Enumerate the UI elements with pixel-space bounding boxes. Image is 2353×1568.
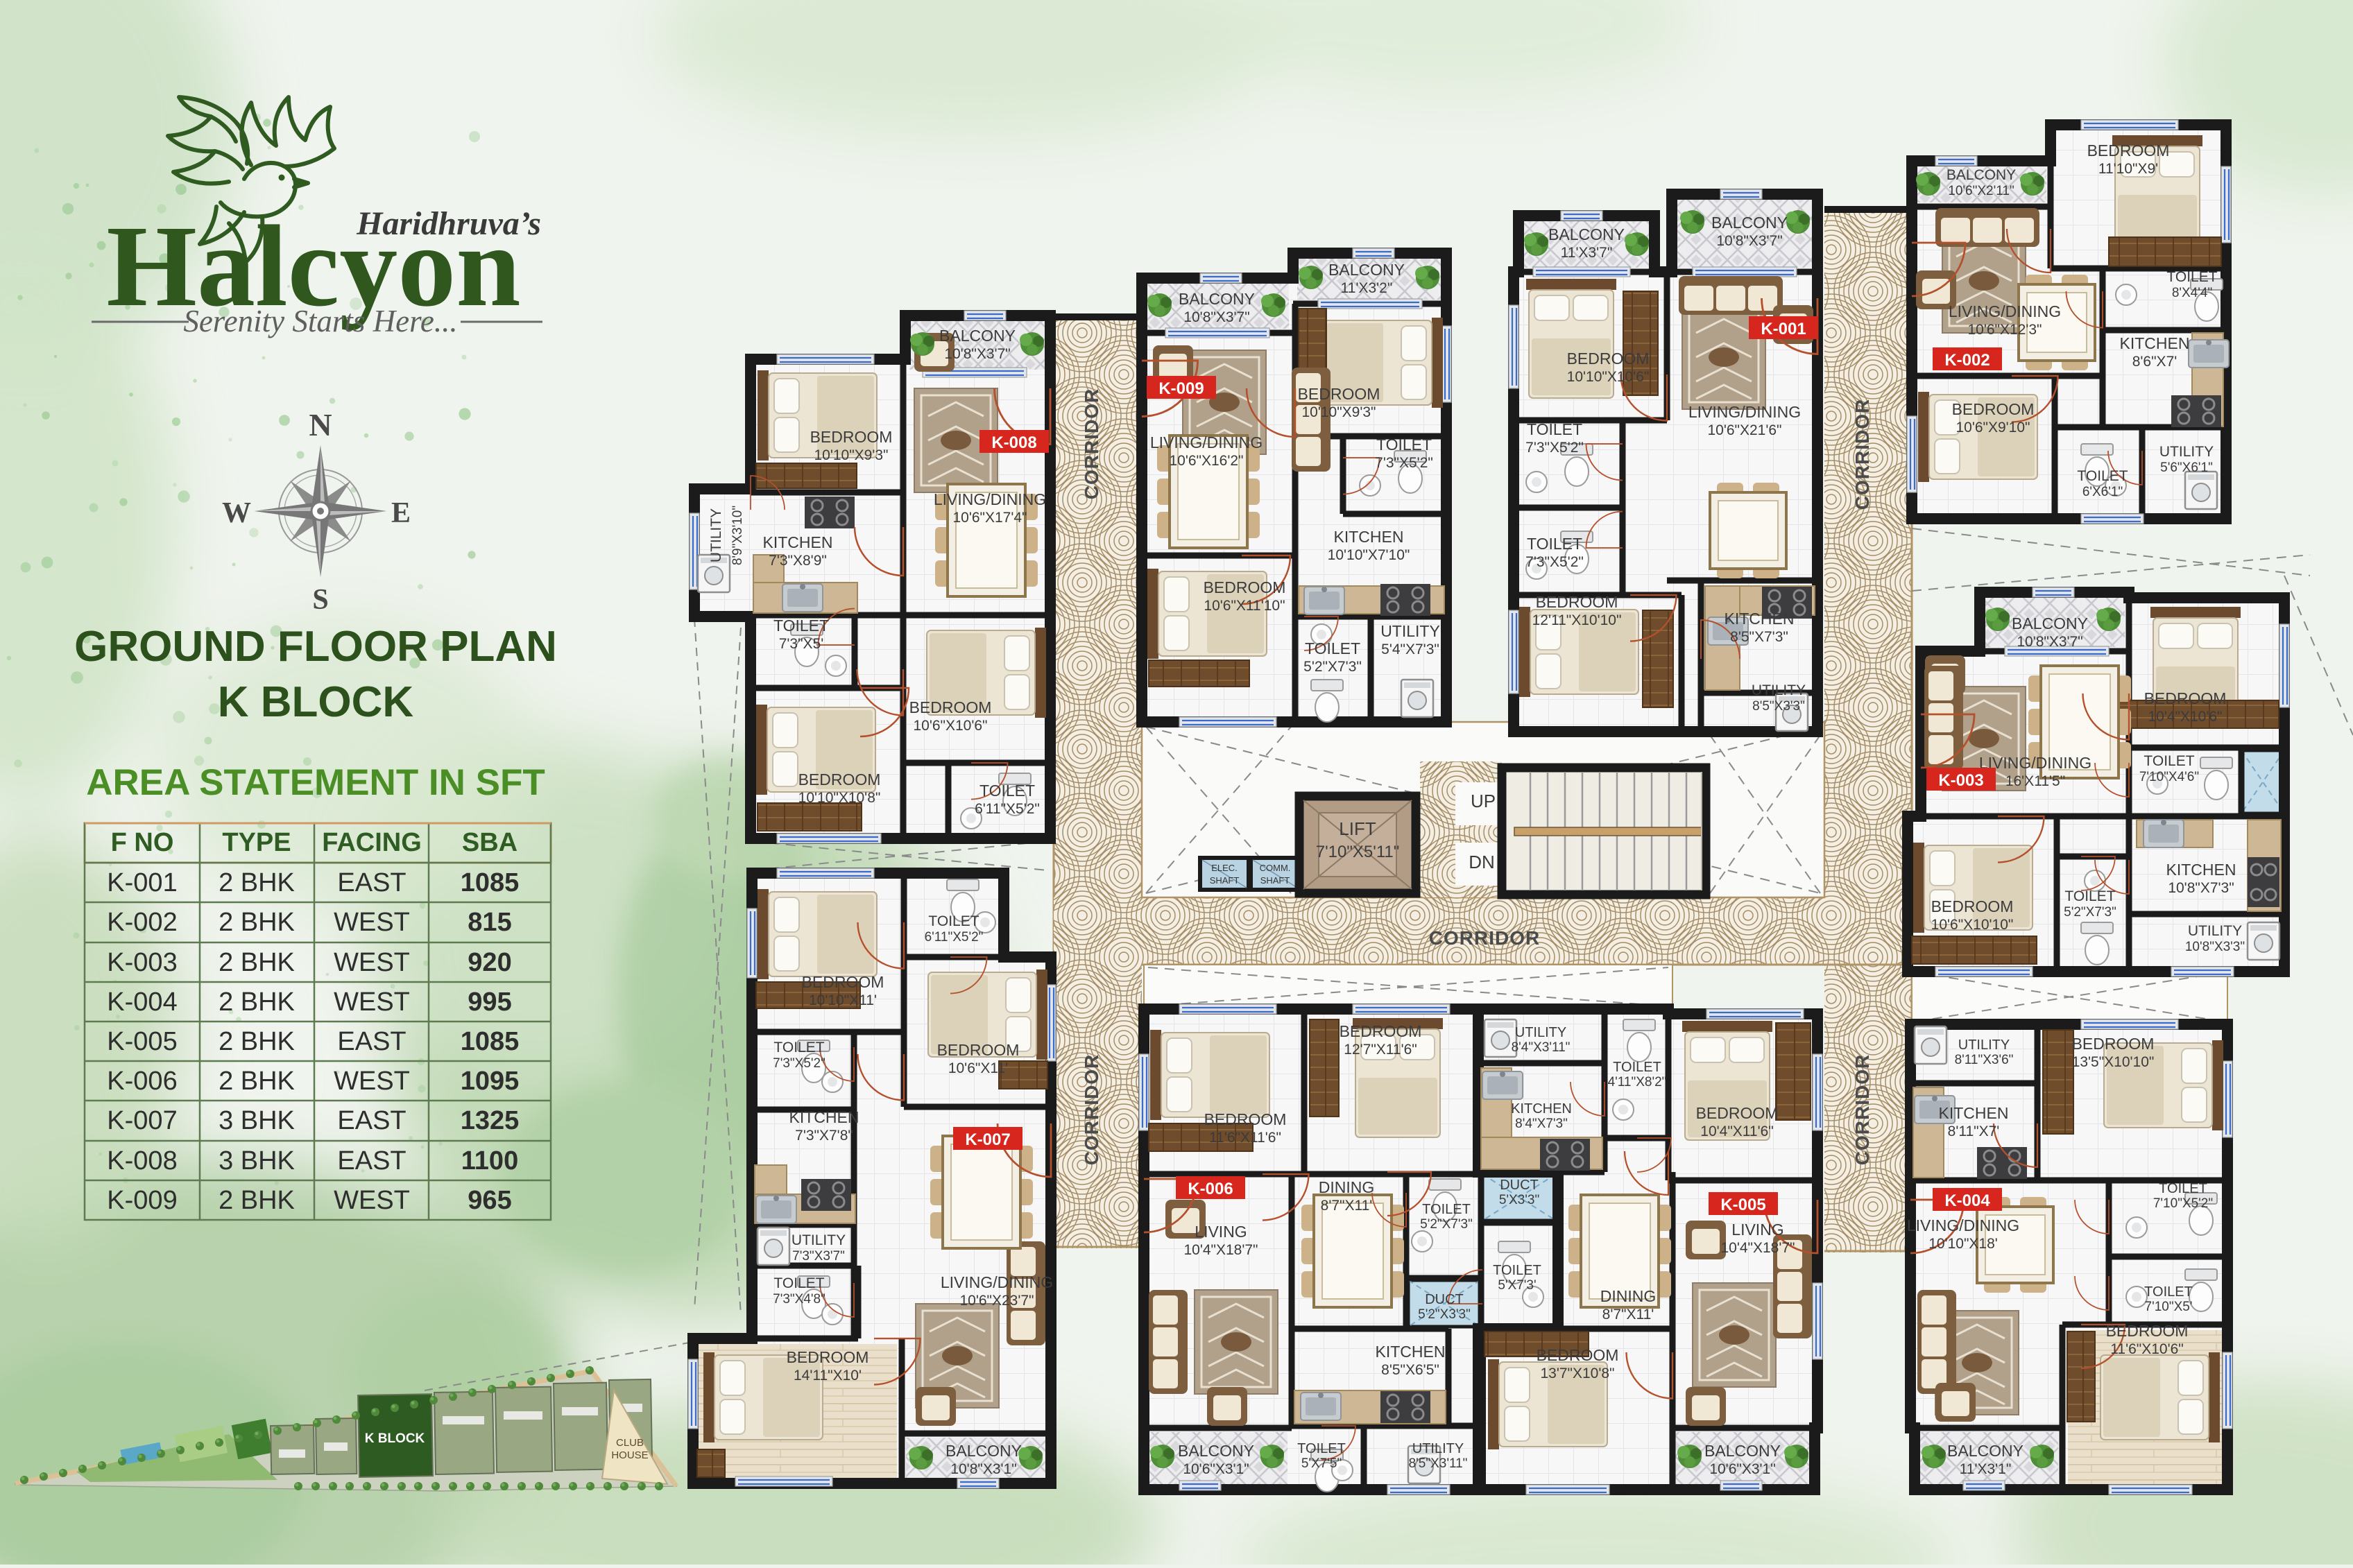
svg-text:10'6"X3'1": 10'6"X3'1" <box>1183 1461 1249 1477</box>
svg-text:10'8"X7'3": 10'8"X7'3" <box>2168 880 2234 896</box>
svg-text:10'4"X18'7": 10'4"X18'7" <box>1183 1242 1258 1258</box>
svg-text:10'6"X16'2": 10'6"X16'2" <box>1169 453 1243 469</box>
svg-text:KITCHEN: KITCHEN <box>1334 528 1404 546</box>
svg-text:8'4"X3'11": 8'4"X3'11" <box>1512 1040 1571 1055</box>
svg-text:BEDROOM: BEDROOM <box>1931 897 2014 915</box>
svg-text:7'3"X5'2": 7'3"X5'2" <box>1525 440 1584 456</box>
svg-text:SHAFT: SHAFT <box>1260 875 1290 886</box>
svg-text:5'2"X7'3": 5'2"X7'3" <box>1303 659 1362 675</box>
svg-text:2 BHK: 2 BHK <box>219 868 295 897</box>
svg-text:8'6"X7': 8'6"X7' <box>2132 354 2177 370</box>
svg-text:5'X3'3": 5'X3'3" <box>1499 1193 1539 1207</box>
svg-text:5'2"X7'3": 5'2"X7'3" <box>1420 1217 1473 1232</box>
svg-text:K BLOCK: K BLOCK <box>218 678 414 726</box>
svg-text:BEDROOM: BEDROOM <box>1696 1104 1779 1122</box>
svg-text:LIVING/DINING: LIVING/DINING <box>1907 1216 2019 1234</box>
svg-text:BEDROOM: BEDROOM <box>1298 385 1380 403</box>
svg-text:WEST: WEST <box>334 1186 410 1215</box>
svg-text:UTILITY: UTILITY <box>708 508 724 562</box>
svg-text:K-004: K-004 <box>1944 1191 1990 1210</box>
svg-text:BALCONY: BALCONY <box>946 1442 1022 1460</box>
svg-text:BEDROOM: BEDROOM <box>787 1348 869 1366</box>
svg-text:920: 920 <box>468 948 511 977</box>
svg-text:KITCHEN: KITCHEN <box>1376 1343 1446 1361</box>
svg-text:995: 995 <box>468 988 511 1017</box>
svg-text:12'11"X10'10": 12'11"X10'10" <box>1532 612 1622 628</box>
svg-text:SHAFT: SHAFT <box>1210 875 1240 886</box>
svg-text:K-007: K-007 <box>107 1106 177 1135</box>
svg-text:K-007: K-007 <box>965 1130 1010 1149</box>
svg-text:2 BHK: 2 BHK <box>219 1067 295 1096</box>
svg-text:UTILITY: UTILITY <box>1515 1025 1566 1040</box>
svg-text:KITCHEN: KITCHEN <box>1725 610 1795 628</box>
svg-text:TOILET: TOILET <box>928 913 979 929</box>
svg-text:10'10"X18': 10'10"X18' <box>1928 1236 1998 1252</box>
svg-text:10'8"X3'7": 10'8"X3'7" <box>2017 634 2082 650</box>
svg-text:HOUSE: HOUSE <box>611 1449 648 1461</box>
svg-text:CLUB: CLUB <box>616 1437 644 1449</box>
svg-text:7'3"X5'2": 7'3"X5'2" <box>773 1056 825 1071</box>
svg-text:5'6"X6'1": 5'6"X6'1" <box>2160 460 2213 475</box>
svg-text:10'6"X17'4": 10'6"X17'4" <box>952 510 1027 526</box>
svg-text:10'10"X10'6": 10'10"X10'6" <box>1567 369 1650 385</box>
svg-text:TOILET: TOILET <box>1305 639 1360 657</box>
svg-text:7'10"X5'11": 7'10"X5'11" <box>1316 843 1400 861</box>
svg-text:TOILET: TOILET <box>2144 753 2194 769</box>
svg-text:10'10"X9'3": 10'10"X9'3" <box>1301 404 1376 420</box>
svg-text:UTILITY: UTILITY <box>2159 444 2214 460</box>
svg-text:BEDROOM: BEDROOM <box>810 428 893 446</box>
svg-text:TOILET: TOILET <box>1527 420 1582 438</box>
svg-text:13'7"X10'8": 13'7"X10'8" <box>1540 1365 1614 1381</box>
svg-text:LIVING/DINING: LIVING/DINING <box>1150 433 1263 451</box>
svg-text:BALCONY: BALCONY <box>1711 214 1788 232</box>
svg-text:DINING: DINING <box>1319 1178 1375 1196</box>
svg-text:10'4"X10'6": 10'4"X10'6" <box>2148 709 2222 725</box>
svg-text:2 BHK: 2 BHK <box>219 948 295 977</box>
svg-text:5'X7'5": 5'X7'5" <box>1301 1456 1342 1471</box>
svg-text:TOILET: TOILET <box>1297 1441 1346 1456</box>
svg-text:10'6"X23'7": 10'6"X23'7" <box>959 1293 1034 1309</box>
svg-text:TOILET: TOILET <box>773 617 829 635</box>
svg-text:2 BHK: 2 BHK <box>219 1027 295 1056</box>
svg-text:KITCHEN: KITCHEN <box>763 533 833 551</box>
svg-text:1095: 1095 <box>461 1067 520 1096</box>
svg-text:16'X11'5": 16'X11'5" <box>2005 773 2065 789</box>
svg-text:10'8"X3'7": 10'8"X3'7" <box>944 346 1010 362</box>
svg-text:10'8"X3'3": 10'8"X3'3" <box>2185 940 2245 954</box>
svg-text:BEDROOM: BEDROOM <box>802 973 884 991</box>
svg-text:8'7"X11': 8'7"X11' <box>1602 1307 1654 1323</box>
svg-text:BEDROOM: BEDROOM <box>1537 1346 1619 1364</box>
svg-text:GROUND FLOOR PLAN: GROUND FLOOR PLAN <box>74 623 557 671</box>
svg-text:BEDROOM: BEDROOM <box>2072 1035 2155 1053</box>
svg-text:LIVING/DINING: LIVING/DINING <box>1688 403 1801 421</box>
svg-text:EAST: EAST <box>337 868 406 897</box>
svg-text:10'6"X11'10": 10'6"X11'10" <box>1204 598 1285 614</box>
svg-text:10'6"X10'10": 10'6"X10'10" <box>1931 917 2014 933</box>
svg-text:K-003: K-003 <box>1938 771 1983 790</box>
svg-text:BALCONY: BALCONY <box>1548 225 1625 243</box>
svg-text:2 BHK: 2 BHK <box>219 1186 295 1215</box>
svg-text:3 BHK: 3 BHK <box>219 1146 295 1175</box>
svg-text:10'6"X12'3": 10'6"X12'3" <box>1967 322 2042 338</box>
svg-text:KITCHEN: KITCHEN <box>2166 861 2236 879</box>
svg-text:3 BHK: 3 BHK <box>219 1106 295 1135</box>
svg-text:WEST: WEST <box>334 988 410 1017</box>
svg-text:TOILET: TOILET <box>1422 1202 1471 1217</box>
svg-text:BALCONY: BALCONY <box>1947 1442 2023 1460</box>
svg-text:BALCONY: BALCONY <box>1946 167 2016 183</box>
svg-text:BALCONY: BALCONY <box>1179 290 1255 308</box>
svg-text:BEDROOM: BEDROOM <box>798 770 881 789</box>
svg-text:TOILET: TOILET <box>773 1275 824 1291</box>
svg-text:LIVING/DINING: LIVING/DINING <box>941 1273 1053 1291</box>
svg-text:8'11"X3'6": 8'11"X3'6" <box>1955 1053 2014 1067</box>
svg-text:K-002: K-002 <box>1944 351 1990 370</box>
svg-text:10'8"X3'7": 10'8"X3'7" <box>1183 309 1249 325</box>
svg-text:TOILET: TOILET <box>1527 535 1582 553</box>
svg-text:2 BHK: 2 BHK <box>219 908 295 937</box>
svg-text:ELEC.: ELEC. <box>1211 863 1238 873</box>
svg-text:K-001: K-001 <box>107 868 177 897</box>
svg-text:UTILITY: UTILITY <box>1958 1037 2010 1053</box>
svg-text:TOILET: TOILET <box>979 782 1035 800</box>
svg-text:10'8"X3'1": 10'8"X3'1" <box>950 1461 1016 1477</box>
svg-text:K-009: K-009 <box>107 1186 177 1215</box>
svg-text:EAST: EAST <box>337 1027 406 1056</box>
svg-text:BALCONY: BALCONY <box>1178 1442 1254 1460</box>
svg-text:11'6"X11'6": 11'6"X11'6" <box>1209 1130 1281 1146</box>
svg-text:W: W <box>222 497 251 529</box>
svg-text:2 BHK: 2 BHK <box>219 988 295 1017</box>
svg-text:UTILITY: UTILITY <box>1380 622 1440 640</box>
svg-text:10'6"X11': 10'6"X11' <box>948 1060 1008 1076</box>
svg-text:K-009: K-009 <box>1158 379 1204 398</box>
svg-text:TOILET: TOILET <box>1613 1060 1661 1075</box>
svg-text:5'X7'3': 5'X7'3' <box>1498 1278 1536 1293</box>
svg-text:11'X3'2": 11'X3'2" <box>1341 280 1393 296</box>
svg-text:COMM.: COMM. <box>1260 863 1291 873</box>
svg-text:UP: UP <box>1471 791 1496 811</box>
svg-text:TOILET: TOILET <box>2064 888 2115 904</box>
svg-text:10'6"X3'1": 10'6"X3'1" <box>1709 1461 1775 1477</box>
svg-text:7'3"X5': 7'3"X5' <box>779 636 824 652</box>
svg-text:1325: 1325 <box>461 1106 520 1135</box>
svg-text:F NO: F NO <box>111 828 174 857</box>
svg-text:7'10"X5': 7'10"X5' <box>2145 1300 2193 1314</box>
svg-text:TOILET: TOILET <box>2144 1284 2193 1300</box>
svg-text:EAST: EAST <box>337 1146 406 1175</box>
svg-text:10'8"X3'7": 10'8"X3'7" <box>1716 233 1782 249</box>
svg-text:7'10"X4'6": 7'10"X4'6" <box>2139 770 2199 784</box>
svg-text:6'X6'1": 6'X6'1" <box>2082 485 2123 499</box>
svg-text:12'7"X11'6": 12'7"X11'6" <box>1344 1042 1417 1058</box>
svg-text:BEDROOM: BEDROOM <box>937 1041 1020 1059</box>
svg-text:10'10"X9'3": 10'10"X9'3" <box>814 447 888 463</box>
svg-text:8'7"X11': 8'7"X11' <box>1321 1198 1373 1214</box>
svg-text:CORRIDOR: CORRIDOR <box>1429 927 1540 949</box>
svg-text:E: E <box>391 497 411 529</box>
svg-text:DN: DN <box>1469 852 1495 872</box>
svg-text:N: N <box>309 407 332 442</box>
svg-text:LIVING/DINING: LIVING/DINING <box>934 490 1046 508</box>
svg-text:8'5"X3'11": 8'5"X3'11" <box>1409 1456 1468 1471</box>
svg-text:10'6"X21'6": 10'6"X21'6" <box>1707 422 1781 438</box>
svg-text:6'11"X5'2": 6'11"X5'2" <box>925 930 984 945</box>
svg-text:5'2"X7'3": 5'2"X7'3" <box>2064 905 2116 920</box>
svg-text:BALCONY: BALCONY <box>1704 1442 1781 1460</box>
svg-text:LIVING/DINING: LIVING/DINING <box>1979 754 2091 772</box>
svg-text:10'6"X2'11": 10'6"X2'11" <box>1948 184 2014 198</box>
svg-text:10'4"X11'6": 10'4"X11'6" <box>1700 1123 1773 1139</box>
svg-text:BALCONY: BALCONY <box>1328 261 1405 279</box>
svg-text:DINING: DINING <box>1600 1287 1657 1305</box>
svg-text:LIVING: LIVING <box>1731 1221 1783 1239</box>
svg-text:CORRIDOR: CORRIDOR <box>1851 1054 1873 1165</box>
svg-text:WEST: WEST <box>334 948 410 977</box>
svg-text:1085: 1085 <box>461 1027 520 1056</box>
svg-text:TOILET: TOILET <box>2077 468 2128 484</box>
svg-text:7'3"X7'8": 7'3"X7'8" <box>795 1128 853 1144</box>
svg-text:WEST: WEST <box>334 908 410 937</box>
svg-text:6'11"X5'2": 6'11"X5'2" <box>975 801 1040 817</box>
svg-text:10'10"X11': 10'10"X11' <box>809 992 877 1008</box>
svg-text:815: 815 <box>468 908 511 937</box>
svg-text:K-006: K-006 <box>107 1067 177 1096</box>
svg-text:TOILET: TOILET <box>773 1040 824 1056</box>
svg-text:8'11"X7': 8'11"X7' <box>1948 1123 2000 1139</box>
svg-text:8'4"X7'3": 8'4"X7'3" <box>1515 1117 1568 1131</box>
svg-text:K-001: K-001 <box>1761 320 1806 338</box>
svg-text:S: S <box>312 584 328 616</box>
svg-text:14'11"X10': 14'11"X10' <box>794 1368 862 1384</box>
svg-text:K-005: K-005 <box>107 1027 177 1056</box>
svg-text:DUCT: DUCT <box>1500 1178 1539 1193</box>
svg-text:11'10"X9': 11'10"X9' <box>2098 161 2158 177</box>
svg-text:965: 965 <box>468 1186 511 1215</box>
svg-text:8'5"X3'3": 8'5"X3'3" <box>1752 699 1805 714</box>
svg-text:LIVING: LIVING <box>1195 1223 1247 1241</box>
svg-text:KITCHEN: KITCHEN <box>1511 1101 1572 1117</box>
svg-text:K-006: K-006 <box>1188 1180 1233 1198</box>
svg-text:BALCONY: BALCONY <box>2012 614 2088 632</box>
svg-text:10'6"X9'10": 10'6"X9'10" <box>1956 420 2030 436</box>
svg-text:LIFT: LIFT <box>1339 818 1376 839</box>
svg-text:TOILET: TOILET <box>2159 1181 2207 1196</box>
svg-text:8'9"X3'10": 8'9"X3'10" <box>730 506 745 565</box>
svg-text:8'X4'4": 8'X4'4" <box>2172 286 2212 300</box>
svg-text:10'6"X10'6": 10'6"X10'6" <box>913 718 987 734</box>
svg-text:KITCHEN: KITCHEN <box>2120 334 2190 352</box>
svg-text:13'5"X10'10": 13'5"X10'10" <box>2072 1054 2155 1070</box>
svg-text:7'3"X8'9": 7'3"X8'9" <box>769 553 827 569</box>
svg-text:K-005: K-005 <box>1720 1196 1765 1214</box>
svg-text:K-003: K-003 <box>107 948 177 977</box>
svg-text:BEDROOM: BEDROOM <box>2087 141 2170 160</box>
svg-text:7'3"X4'8": 7'3"X4'8" <box>773 1292 825 1307</box>
svg-text:BEDROOM: BEDROOM <box>1952 400 2035 418</box>
svg-text:BEDROOM: BEDROOM <box>909 698 992 716</box>
svg-text:BEDROOM: BEDROOM <box>2106 1322 2189 1340</box>
svg-text:BEDROOM: BEDROOM <box>1340 1022 1422 1040</box>
svg-text:CORRIDOR: CORRIDOR <box>1851 399 1873 510</box>
svg-text:UTILITY: UTILITY <box>792 1232 846 1248</box>
svg-text:10'4"X18'7": 10'4"X18'7" <box>1720 1240 1795 1256</box>
svg-text:CORRIDOR: CORRIDOR <box>1081 388 1102 499</box>
svg-text:TYPE: TYPE <box>222 828 291 857</box>
svg-text:BEDROOM: BEDROOM <box>1536 593 1618 611</box>
svg-text:BEDROOM: BEDROOM <box>1567 350 1650 368</box>
svg-text:Serenity Starts Here...: Serenity Starts Here... <box>183 304 457 338</box>
svg-text:K-008: K-008 <box>107 1146 177 1175</box>
svg-text:1100: 1100 <box>461 1146 518 1175</box>
svg-text:7'3"X5'2": 7'3"X5'2" <box>1525 554 1584 570</box>
svg-text:UTILITY: UTILITY <box>2188 923 2242 939</box>
svg-text:BEDROOM: BEDROOM <box>1204 578 1286 596</box>
svg-text:K BLOCK: K BLOCK <box>365 1431 425 1446</box>
svg-text:11'X3'7": 11'X3'7" <box>1561 245 1613 261</box>
svg-text:KITCHEN: KITCHEN <box>1939 1104 2009 1122</box>
svg-text:7'10"X5'2": 7'10"X5'2" <box>2153 1196 2213 1211</box>
svg-text:EAST: EAST <box>337 1106 406 1135</box>
svg-text:K-008: K-008 <box>991 433 1036 452</box>
svg-text:11'6"X10'6": 11'6"X10'6" <box>2110 1341 2183 1357</box>
svg-text:4'11"X8'2": 4'11"X8'2" <box>1608 1075 1667 1089</box>
svg-text:K-002: K-002 <box>107 908 177 937</box>
svg-text:UTILITY: UTILITY <box>1752 682 1806 698</box>
svg-text:TOILET: TOILET <box>1376 436 1432 454</box>
svg-text:AREA STATEMENT IN SFT: AREA STATEMENT IN SFT <box>86 762 545 803</box>
svg-text:BALCONY: BALCONY <box>939 327 1016 345</box>
svg-text:10'10"X7'10": 10'10"X7'10" <box>1328 547 1410 563</box>
svg-text:5'4"X7'3": 5'4"X7'3" <box>1381 641 1439 657</box>
svg-text:UTILITY: UTILITY <box>1412 1441 1464 1456</box>
svg-text:CORRIDOR: CORRIDOR <box>1081 1054 1102 1165</box>
svg-text:WEST: WEST <box>334 1067 410 1096</box>
svg-text:FACING: FACING <box>322 828 422 857</box>
svg-text:8'5"X6'5": 8'5"X6'5" <box>1381 1362 1439 1378</box>
svg-text:TOILET: TOILET <box>1493 1263 1541 1278</box>
svg-text:LIVING/DINING: LIVING/DINING <box>1949 302 2061 320</box>
svg-text:7'3"X3'7": 7'3"X3'7" <box>792 1249 845 1264</box>
svg-text:K-004: K-004 <box>107 988 177 1017</box>
svg-text:TOILET: TOILET <box>2166 269 2217 285</box>
svg-text:8'5"X7'3": 8'5"X7'3" <box>1730 629 1788 645</box>
svg-text:BEDROOM: BEDROOM <box>1204 1110 1287 1128</box>
svg-text:DUCT: DUCT <box>1425 1292 1464 1307</box>
svg-text:11'X3'1": 11'X3'1" <box>1960 1461 2012 1477</box>
svg-text:5'2"X3'3": 5'2"X3'3" <box>1418 1307 1471 1322</box>
svg-text:BEDROOM: BEDROOM <box>2144 689 2227 707</box>
svg-text:KITCHEN: KITCHEN <box>789 1108 859 1126</box>
svg-text:SBA: SBA <box>462 828 517 857</box>
svg-text:10'10"X10'8": 10'10"X10'8" <box>798 790 881 806</box>
svg-text:7'3"X5'2": 7'3"X5'2" <box>1375 455 1433 471</box>
svg-text:1085: 1085 <box>461 868 520 897</box>
